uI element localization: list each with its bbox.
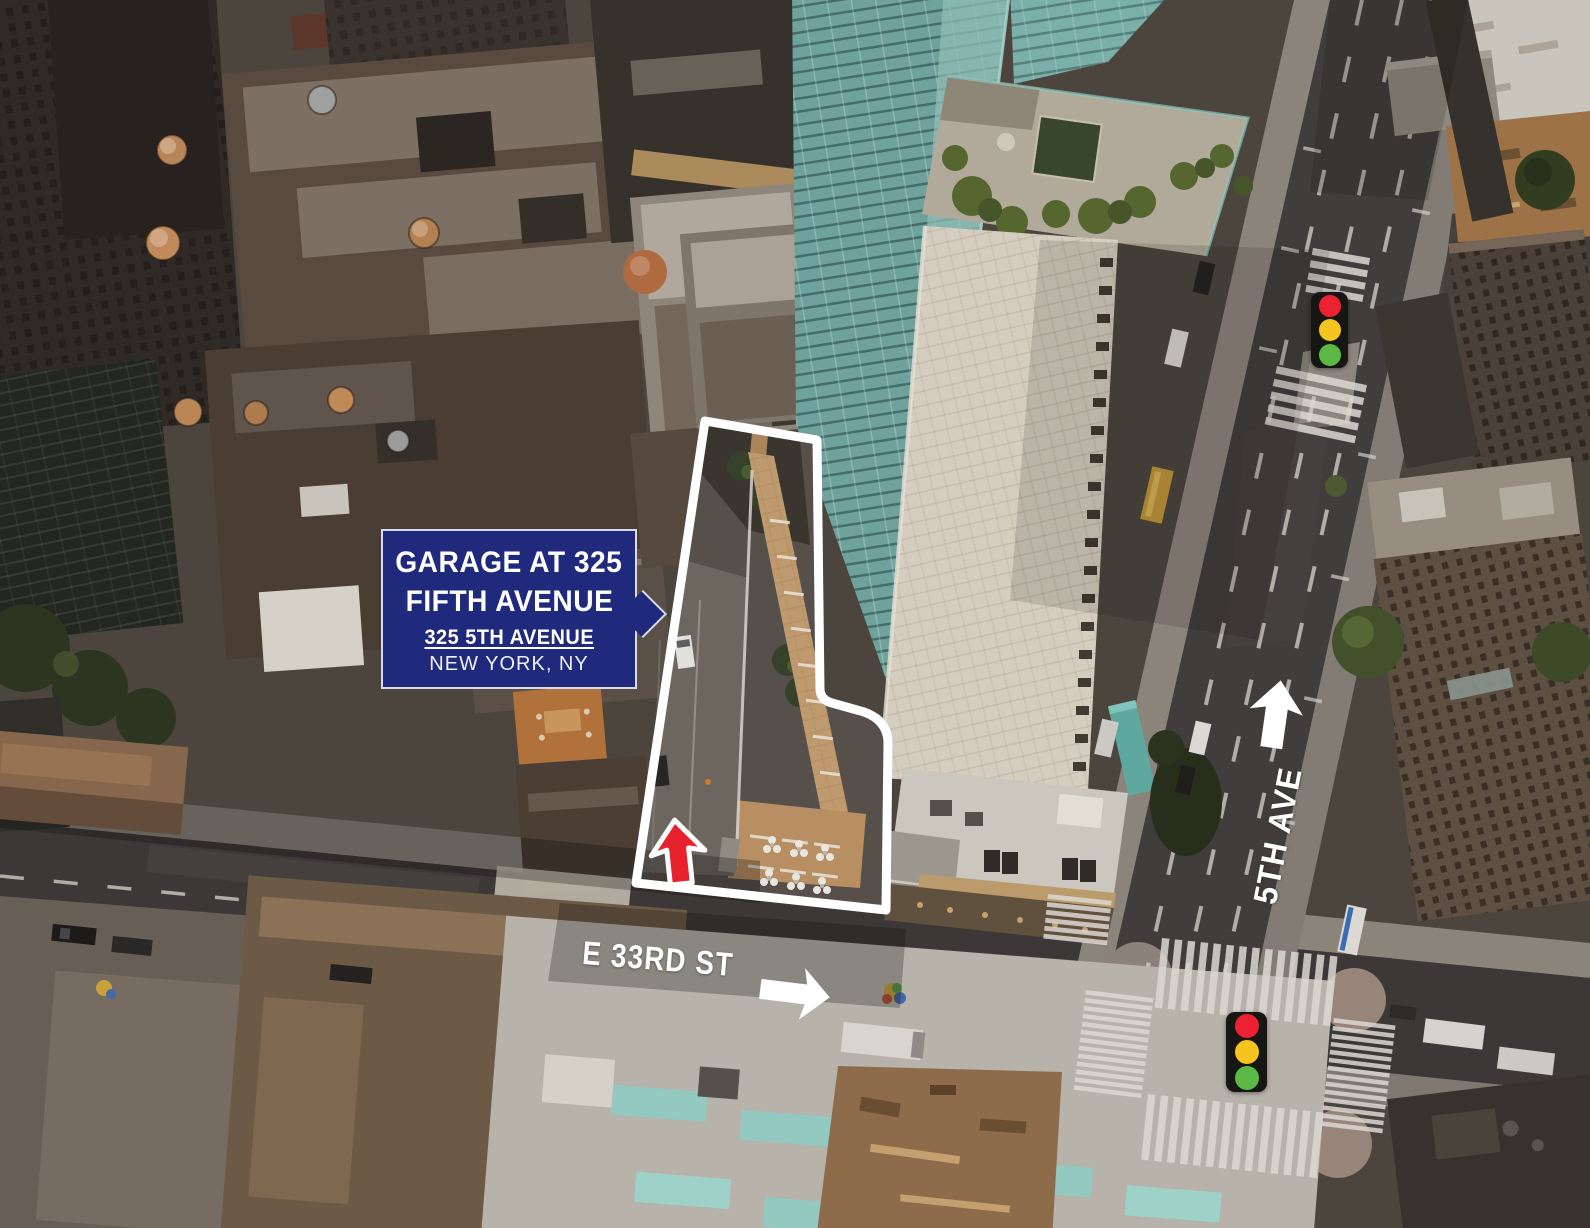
traffic-light-icon [1226, 1012, 1267, 1092]
callout-city-state: NEW YORK, NY [429, 653, 588, 676]
property-callout: GARAGE AT 325 FIFTH AVENUE 325 5TH AVENU… [381, 529, 637, 689]
callout-title-line1: GARAGE AT 325 [395, 543, 622, 582]
traffic-light-icon [1311, 292, 1348, 368]
amber-light [1235, 1040, 1259, 1064]
amber-light [1319, 319, 1341, 341]
aerial-map: E 33RD ST 5TH AVE GARAGE AT 325 FIFTH AV… [0, 0, 1590, 1228]
callout-title-line2: FIFTH AVENUE [405, 582, 613, 621]
red-light [1235, 1014, 1259, 1038]
red-light [1319, 295, 1341, 317]
callout-address: 325 5TH AVENUE [424, 626, 594, 650]
building-west-glass [0, 359, 188, 835]
satellite-imagery [0, 0, 1590, 1228]
green-light [1319, 344, 1341, 366]
green-light [1235, 1066, 1259, 1090]
